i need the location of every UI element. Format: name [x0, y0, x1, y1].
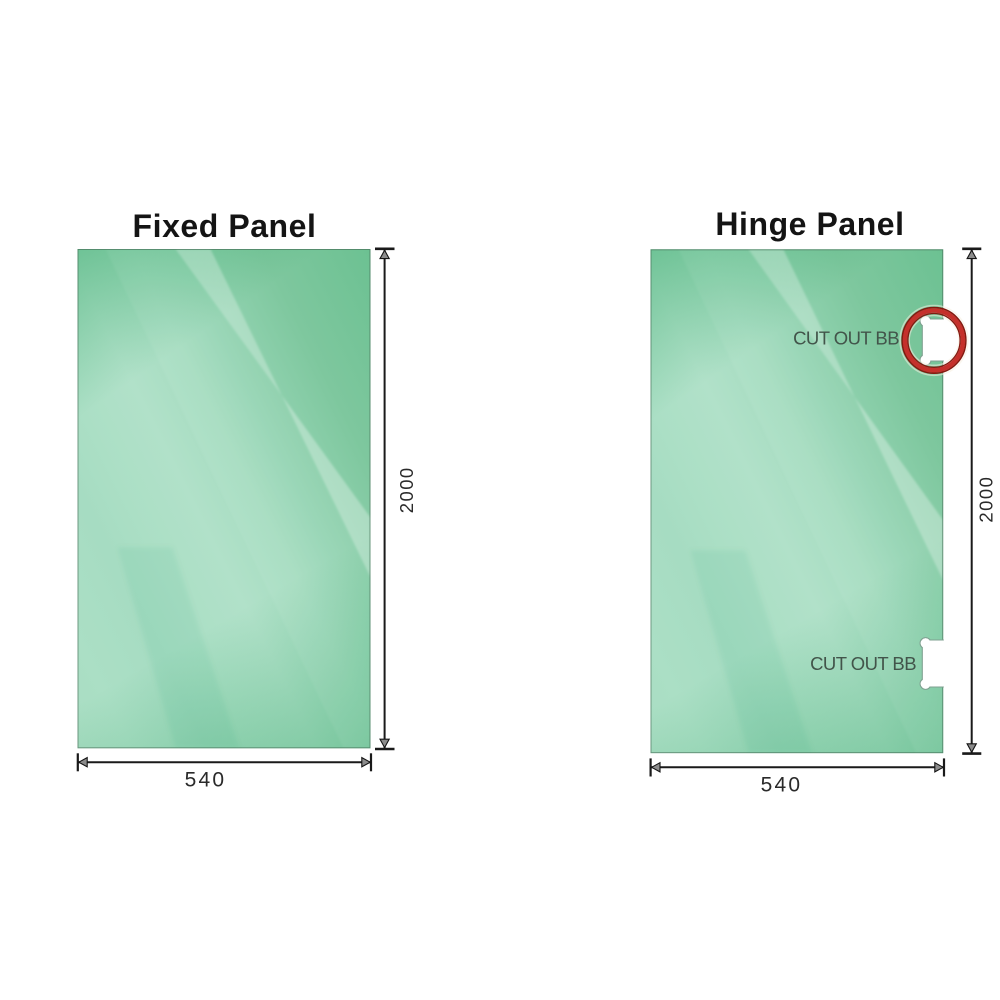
svg-text:2000: 2000: [975, 476, 996, 523]
svg-text:540: 540: [185, 769, 227, 792]
svg-text:CUT OUT BB: CUT OUT BB: [810, 653, 916, 674]
svg-text:Hinge Panel: Hinge Panel: [715, 206, 904, 242]
svg-text:540: 540: [761, 774, 803, 797]
svg-text:Fixed Panel: Fixed Panel: [133, 208, 317, 244]
svg-text:2000: 2000: [396, 466, 417, 513]
svg-text:CUT OUT BB: CUT OUT BB: [793, 327, 899, 348]
